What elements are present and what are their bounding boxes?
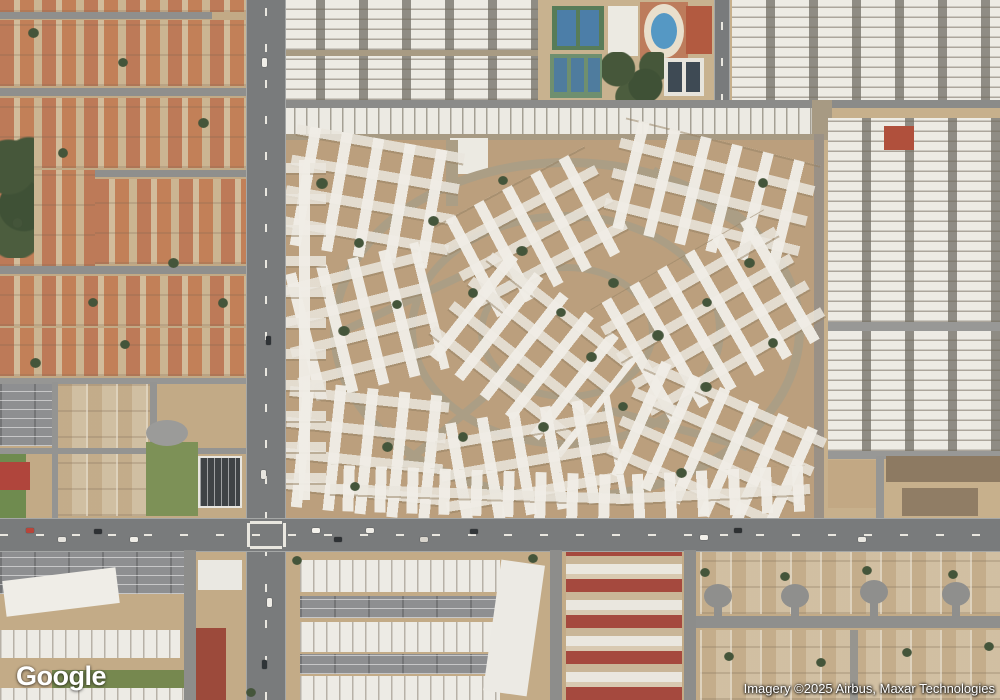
south-street — [550, 550, 562, 700]
mobile-home-rows-east — [828, 331, 1000, 451]
mobile-home-rows-northeast — [732, 0, 1000, 108]
car — [858, 537, 866, 542]
tree — [516, 246, 528, 256]
cross-street — [282, 100, 1000, 108]
mobile-home-row-band — [282, 108, 816, 134]
tree — [618, 402, 628, 411]
clubhouse-building — [608, 6, 638, 56]
red-townhome-rows — [566, 552, 682, 700]
car — [700, 535, 708, 540]
tree — [350, 482, 360, 491]
tree — [608, 278, 619, 288]
tree — [392, 300, 402, 309]
crosswalk — [247, 523, 250, 547]
tree — [744, 258, 755, 268]
apartment-parking — [300, 596, 500, 618]
tree — [984, 642, 994, 651]
tree — [528, 554, 538, 563]
car — [261, 470, 266, 479]
imagery-attribution: Imagery ©2025 Airbus, Maxar Technologies — [744, 681, 995, 696]
main-road-vertical — [246, 0, 286, 700]
tree — [468, 288, 478, 298]
tree — [702, 298, 712, 307]
tree — [556, 308, 566, 317]
tree — [700, 568, 710, 577]
tree — [88, 298, 98, 307]
cul-de-sac-stub — [791, 600, 799, 618]
cul-de-sac-stub — [870, 598, 878, 618]
sport-court — [554, 58, 567, 92]
tree — [780, 572, 790, 581]
car — [58, 537, 66, 542]
tree — [538, 422, 549, 432]
tree — [768, 338, 778, 348]
nw-street — [0, 88, 250, 96]
mobile-home-rows-east — [828, 118, 1000, 322]
tree — [382, 442, 393, 452]
tree — [120, 340, 130, 349]
apartment-parking — [300, 654, 500, 674]
east-street — [828, 322, 1000, 331]
tree — [758, 178, 768, 188]
brown-roof-building — [886, 456, 1000, 482]
car — [470, 529, 478, 534]
car — [130, 537, 138, 542]
tree — [338, 326, 350, 336]
red-roof-building — [196, 628, 226, 700]
tree — [30, 358, 41, 368]
dark-court — [668, 62, 682, 92]
red-roof-building — [0, 462, 30, 490]
tree — [58, 148, 68, 158]
brown-roof-building — [902, 488, 978, 516]
tree — [316, 178, 328, 189]
cul-de-sac — [146, 420, 188, 446]
solar-canopy-building — [198, 456, 242, 508]
crosswalk — [250, 546, 282, 549]
car — [26, 528, 34, 533]
sport-court — [588, 58, 600, 92]
car — [366, 528, 374, 533]
tree — [700, 382, 712, 392]
main-road-horizontal — [0, 518, 1000, 552]
tree — [354, 238, 364, 248]
nw-house-block — [0, 0, 250, 12]
apartment-row — [0, 630, 180, 658]
car — [334, 537, 342, 542]
nw-house-block — [0, 276, 252, 326]
nw-house-block — [95, 179, 252, 264]
tennis-court — [557, 10, 576, 46]
apartment-row — [300, 560, 500, 592]
apartment-row — [300, 676, 500, 700]
car — [312, 528, 320, 533]
rec-access-road — [714, 0, 730, 102]
tree — [862, 566, 872, 575]
red-roof-building — [884, 126, 914, 150]
tree — [12, 218, 23, 228]
car — [267, 598, 272, 607]
tree — [724, 652, 734, 661]
car — [262, 58, 267, 67]
tree — [118, 58, 128, 67]
south-street — [184, 550, 196, 700]
tree — [198, 118, 209, 128]
tree — [676, 468, 687, 478]
tree — [246, 688, 256, 697]
trailer-cluster — [286, 160, 326, 500]
tree — [218, 298, 228, 308]
car — [420, 537, 428, 542]
crosswalk — [250, 521, 282, 524]
red-roof-building — [686, 6, 712, 54]
tan-building — [828, 460, 876, 508]
cul-de-sac-stub — [714, 600, 722, 618]
car — [266, 336, 271, 345]
crosswalk — [283, 523, 286, 547]
tree — [168, 258, 179, 268]
dark-court — [686, 62, 700, 92]
nw-house-block — [0, 98, 250, 168]
park-lawn — [146, 442, 198, 516]
corner-store-building — [198, 560, 242, 590]
tree — [428, 216, 439, 226]
car — [262, 660, 267, 669]
school-parking-lot — [0, 384, 52, 446]
tree — [902, 648, 912, 657]
tree — [652, 330, 664, 341]
car — [734, 528, 742, 533]
google-logo[interactable]: Google — [16, 661, 106, 692]
nw-house-block — [0, 328, 252, 376]
tree — [498, 176, 508, 185]
south-street — [684, 550, 696, 700]
tree — [458, 432, 468, 442]
nw-street — [0, 12, 212, 19]
swimming-pool — [651, 13, 677, 49]
tree — [292, 556, 302, 565]
tree — [948, 570, 958, 579]
apartment-row — [300, 622, 500, 652]
nw-street — [95, 170, 252, 177]
map-canvas[interactable] — [0, 0, 1000, 700]
sw-street — [0, 448, 252, 454]
tree — [586, 352, 597, 362]
east-street — [876, 456, 884, 518]
tree — [816, 658, 826, 667]
car — [94, 529, 102, 534]
sport-court — [571, 58, 584, 92]
nw-tree-grove — [0, 128, 34, 258]
nw-street — [0, 266, 252, 274]
tree — [28, 28, 39, 38]
map-viewport: Google Imagery ©2025 Airbus, Maxar Techn… — [0, 0, 1000, 700]
cul-de-sac-stub — [952, 598, 960, 618]
tennis-court — [580, 10, 599, 46]
